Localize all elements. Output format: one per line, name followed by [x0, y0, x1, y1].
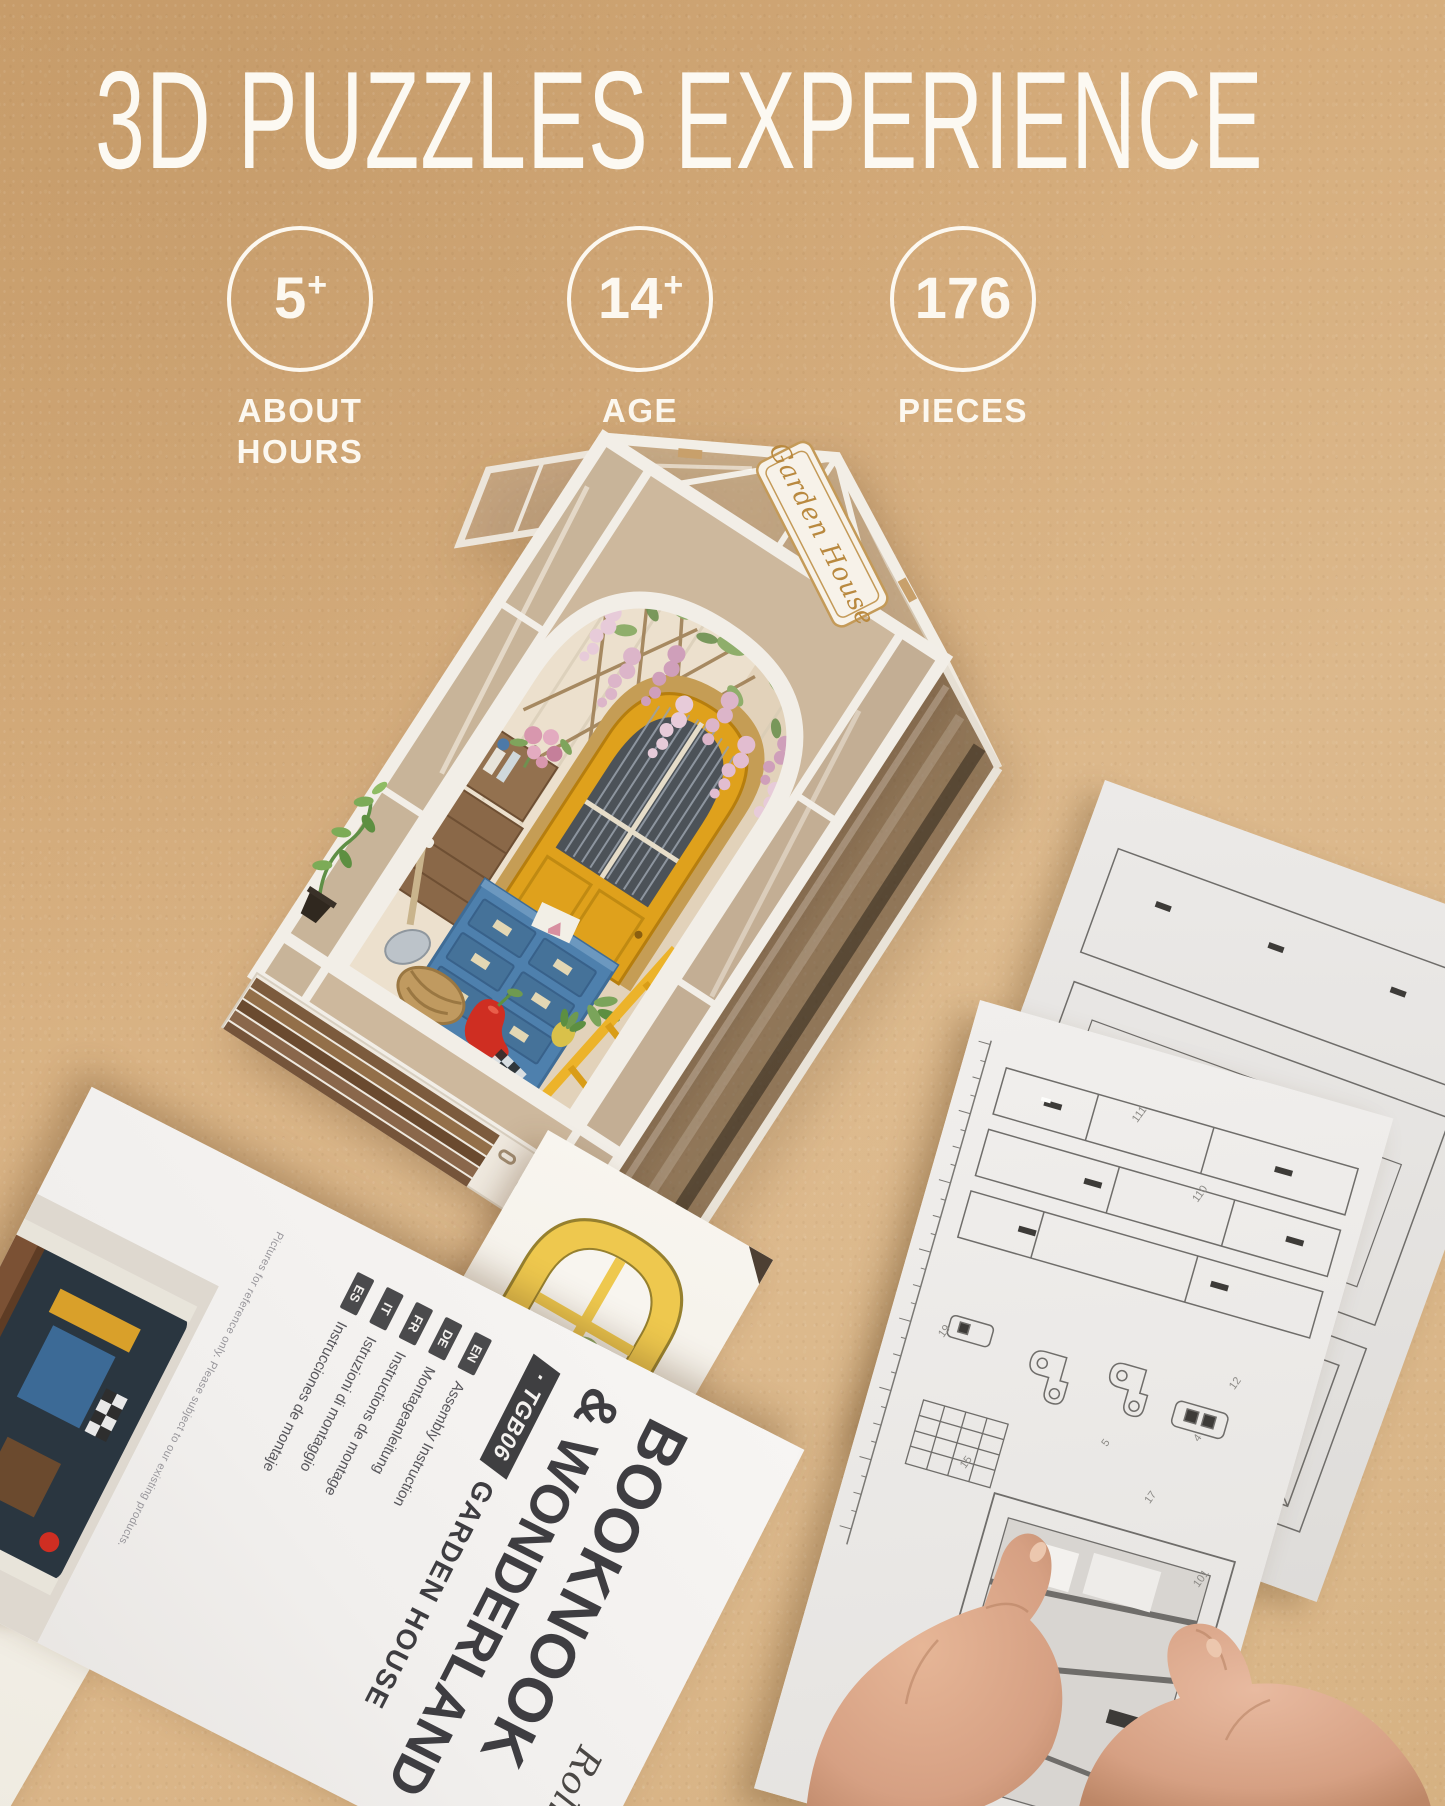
language-list: EN Assembly Instruction DE Montageanleit… — [246, 1265, 492, 1535]
bracket-parts — [936, 1315, 1235, 1452]
age-plus: + — [663, 266, 683, 304]
plank-parts — [958, 1068, 1358, 1338]
part-number: 17 — [1142, 1489, 1159, 1506]
lang-badge-es: ES — [340, 1272, 375, 1316]
lang-badge-de: DE — [428, 1317, 463, 1361]
part-number: 5 — [1099, 1437, 1112, 1449]
pieces-value: 176 — [915, 266, 1012, 331]
part-number: 110 — [1190, 1183, 1210, 1204]
hours-plus: + — [307, 266, 327, 304]
lang-badge-fr: FR — [398, 1302, 433, 1346]
product-infographic: 3D PUZZLES EXPERIENCE 5+ ABOUT HOURS 14+… — [0, 0, 1445, 1806]
hours-value: 5 — [274, 266, 306, 331]
grid-part — [905, 1400, 1008, 1488]
lang-badge-it: IT — [369, 1287, 404, 1331]
part-number: 12 — [1227, 1375, 1244, 1392]
lang-badge-en: EN — [457, 1332, 492, 1376]
window-frame-part — [909, 1493, 1235, 1806]
cut-slots — [1004, 1097, 1322, 1308]
page-title: 3D PUZZLES EXPERIENCE — [95, 40, 1264, 201]
age-value: 14 — [598, 266, 663, 331]
